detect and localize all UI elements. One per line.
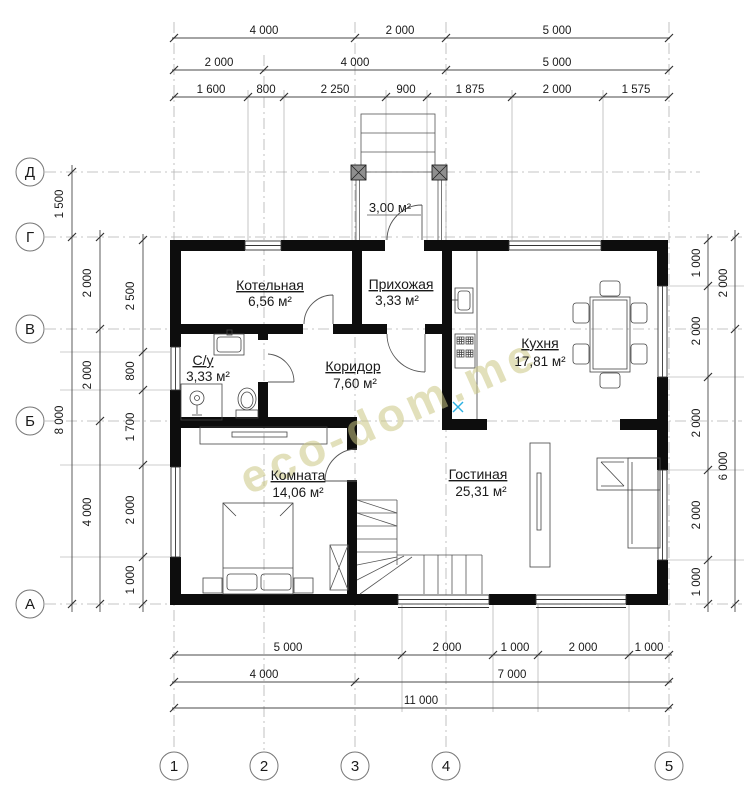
porch [351, 114, 447, 240]
svg-text:Б: Б [25, 413, 35, 430]
dim: 2 000 [386, 25, 415, 37]
column-axis-bubbles: 1 2 3 4 5 [160, 752, 683, 780]
svg-text:Д: Д [25, 164, 35, 181]
dim: 1 000 [635, 642, 664, 654]
living-room-furniture [530, 443, 660, 567]
porch-steps [361, 114, 435, 172]
room-name-living: Гостиная [449, 466, 508, 482]
room-name-hallway: Прихожая [369, 276, 434, 292]
row-axis-bubbles: Д Г В Б А [16, 158, 44, 618]
dim: 2 000 [433, 642, 462, 654]
room-area-bedroom: 14,06 м² [272, 485, 324, 500]
floor-plan-drawing: eco-dom.me Котельная 6,56 м² Прихожая 3,… [0, 0, 750, 800]
room-area-wc: 3,33 м² [186, 369, 230, 384]
dim: 2 000 [569, 642, 598, 654]
svg-text:3: 3 [351, 758, 359, 775]
svg-text:2: 2 [260, 758, 268, 775]
room-area-kitchen: 17,81 м² [514, 354, 566, 369]
axis-col-4: 4 [432, 752, 460, 780]
room-name-corridor: Коридор [325, 358, 381, 374]
tv [537, 473, 541, 530]
dim: 1 575 [622, 84, 651, 96]
axis-col-3: 3 [341, 752, 369, 780]
porch-area-label: 3,00 м² [369, 200, 412, 215]
dim: 2 250 [321, 84, 350, 96]
dim: 800 [125, 361, 137, 380]
dim: 6 000 [718, 452, 730, 481]
dimension-ticks [68, 34, 739, 712]
dim: 11 000 [404, 695, 438, 707]
room-name-kitchen: Кухня [521, 335, 558, 351]
bed [223, 503, 293, 594]
dim: 2 500 [125, 282, 137, 311]
dim: 2 000 [718, 269, 730, 298]
dining-table [590, 297, 630, 372]
dim: 2 000 [82, 269, 94, 298]
dimensions-bottom: 5 000 2 000 1 000 2 000 1 000 4 000 7 00… [250, 642, 664, 707]
svg-text:5: 5 [665, 758, 673, 775]
axis-col-1: 1 [160, 752, 188, 780]
axis-row-G: Г [16, 223, 44, 251]
dim: 2 000 [691, 317, 703, 346]
nightstand-right [294, 578, 313, 593]
floor-plan-page: eco-dom.me Котельная 6,56 м² Прихожая 3,… [0, 0, 750, 800]
dim: 1 700 [125, 413, 137, 442]
room-area-living: 25,31 м² [455, 484, 507, 499]
axis-row-A: А [16, 590, 44, 618]
room-area-corridor: 7,60 м² [333, 376, 377, 391]
door-bathroom [268, 354, 294, 382]
toilet [236, 388, 258, 418]
tv-stand [530, 443, 550, 567]
door-hallway [387, 334, 425, 372]
svg-text:4: 4 [442, 758, 450, 775]
axis-col-2: 2 [250, 752, 278, 780]
axis-row-V: В [16, 315, 44, 343]
axis-col-5: 5 [655, 752, 683, 780]
room-area-boiler: 6,56 м² [248, 294, 292, 309]
dim: 2 000 [691, 409, 703, 438]
dim: 1 000 [501, 642, 530, 654]
dim: 1 500 [54, 190, 66, 219]
dim: 2 000 [125, 496, 137, 525]
dim: 2 000 [82, 361, 94, 390]
dim: 2 000 [543, 84, 572, 96]
dimensions-top: 4 000 2 000 5 000 2 000 4 000 5 000 1 60… [197, 25, 651, 96]
dim: 2 000 [691, 501, 703, 530]
dim: 800 [256, 84, 275, 96]
dim: 1 000 [125, 566, 137, 595]
dimensions-right: 1 000 2 000 2 000 2 000 1 000 2 000 6 00… [691, 249, 730, 597]
svg-text:Г: Г [26, 229, 34, 246]
dim: 5 000 [274, 642, 303, 654]
dim: 1 000 [691, 568, 703, 597]
axis-row-B: Б [16, 407, 44, 435]
dim: 2 000 [205, 57, 234, 69]
svg-text:1: 1 [170, 758, 178, 775]
door-boiler-room [304, 295, 333, 324]
dim: 5 000 [543, 57, 572, 69]
room-name-boiler: Котельная [236, 277, 304, 293]
sofa [597, 458, 660, 548]
porch-columns [351, 165, 447, 180]
room-area-hallway: 3,33 м² [375, 293, 419, 308]
dim: 4 000 [250, 669, 279, 681]
dim: 1 000 [691, 249, 703, 278]
dimensions-left: 1 500 8 000 2 000 2 000 4 000 2 500 800 … [54, 190, 137, 595]
svg-text:В: В [25, 321, 35, 338]
dim: 1 600 [197, 84, 226, 96]
axis-row-D: Д [16, 158, 44, 186]
dim: 4 000 [250, 25, 279, 37]
dim: 1 875 [456, 84, 485, 96]
room-name-wc: С/у [193, 352, 214, 368]
dim: 900 [396, 84, 415, 96]
dim: 7 000 [498, 669, 527, 681]
room-name-bedroom: Комната [271, 467, 326, 483]
dim: 4 000 [82, 498, 94, 527]
dim: 8 000 [54, 406, 66, 435]
nightstand-left [203, 578, 222, 593]
dim: 5 000 [543, 25, 572, 37]
svg-text:А: А [25, 596, 35, 613]
dim: 4 000 [341, 57, 370, 69]
